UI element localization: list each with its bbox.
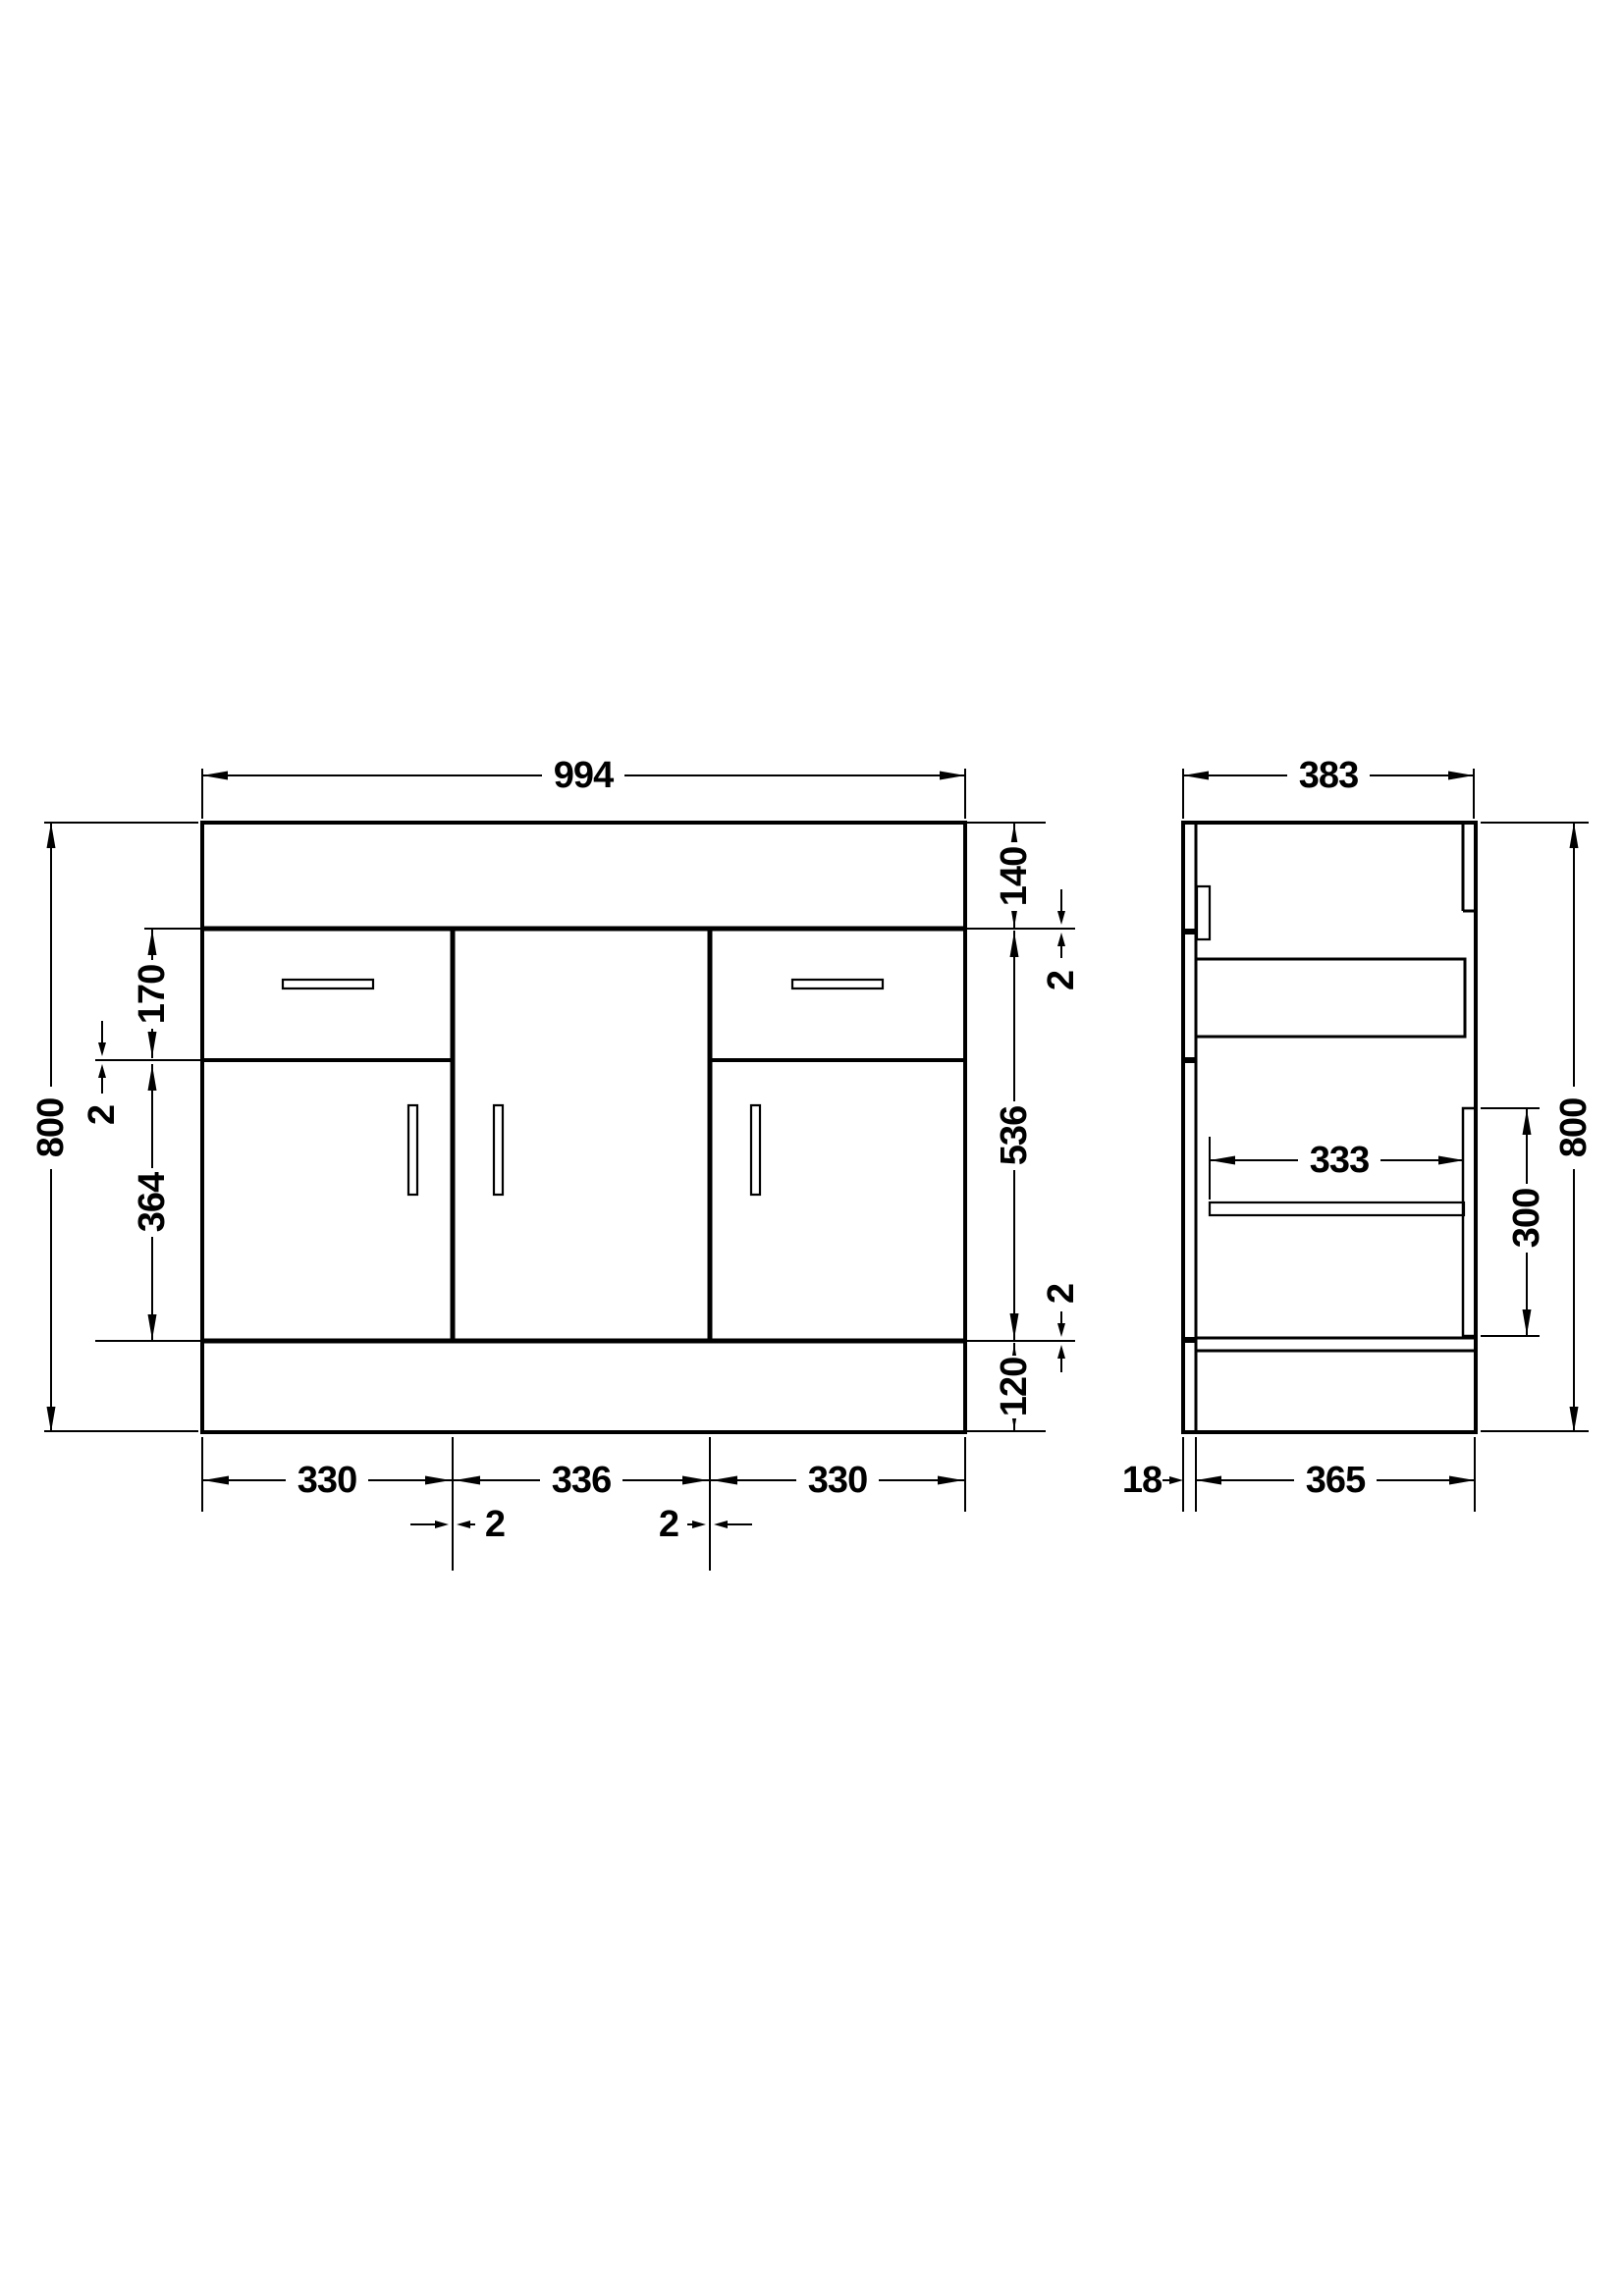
side-shelf [1210,1202,1464,1215]
front-dim-bottom-gaps: 2 2 [410,1504,752,1545]
front-gap-left-label: 2 [81,1105,123,1125]
front-right-width-label: 330 [808,1460,867,1501]
front-dim-plinth-height: 120 [965,1343,1046,1431]
front-plinth-height-label: 120 [994,1358,1035,1416]
side-back-joint-top [1183,929,1196,934]
side-view: 383 333 300 800 [1122,754,1596,1512]
front-gap-middle-right-label: 2 [659,1504,678,1545]
side-back-joint-bottom [1183,1337,1196,1343]
front-drawer-height-label: 170 [132,965,173,1024]
side-back-thickness-label: 18 [1122,1460,1162,1501]
side-dim-shelf-depth: 333 [1210,1137,1464,1200]
front-dim-middle-height: 536 [993,931,1036,1340]
front-dim-worktop-height: 140 [965,823,1046,929]
front-view: 994 800 170 2 [29,754,1082,1571]
front-dim-bottom-widths: 330 336 330 [202,1437,965,1571]
middle-door-handle [494,1105,503,1195]
front-dim-overall-width: 994 [202,754,965,819]
front-cabinet-outline [202,823,965,1432]
right-drawer-handle [792,980,883,988]
vanity-technical-drawing: 994 800 170 2 [0,0,1623,2296]
front-overall-width-label: 994 [554,755,614,796]
side-dim-overall-depth: 383 [1183,754,1474,819]
side-shelf-depth-label: 333 [1310,1140,1369,1181]
side-drawer-box [1196,959,1465,1037]
side-carcass-depth-label: 365 [1306,1460,1366,1501]
left-drawer-handle [283,980,373,988]
side-outer-box [1183,823,1476,1432]
side-overall-height-label: 800 [1553,1098,1595,1157]
side-back-joint-middle [1183,1057,1196,1063]
front-overall-height-label: 800 [30,1098,72,1157]
front-middle-width-label: 336 [552,1460,611,1501]
side-dim-door-panel-height: 300 [1481,1108,1548,1336]
drawing-canvas: 994 800 170 2 [0,0,1623,2296]
front-gap-left-middle-label: 2 [485,1504,505,1545]
side-door-panel-height-label: 300 [1506,1189,1547,1248]
front-gap-right-top-label: 2 [1041,971,1082,990]
front-dim-drawer-height: 170 [131,929,200,1058]
side-overall-depth-label: 383 [1299,755,1358,796]
side-cabinet-outline [1183,823,1476,1432]
side-wall-bracket [1197,886,1210,939]
front-middle-height-label: 536 [994,1106,1035,1165]
left-door-handle [408,1105,417,1195]
front-worktop-height-label: 140 [994,847,1035,906]
front-door-height-label: 364 [132,1172,173,1232]
front-left-width-label: 330 [298,1460,356,1501]
right-door-handle [751,1105,760,1195]
front-gap-right-bottom-label: 2 [1041,1284,1082,1304]
side-dim-overall-height: 800 [1481,823,1596,1432]
side-dim-bottom: 18 365 [1122,1437,1475,1512]
front-dim-gap-left: 2 [81,1021,200,1125]
